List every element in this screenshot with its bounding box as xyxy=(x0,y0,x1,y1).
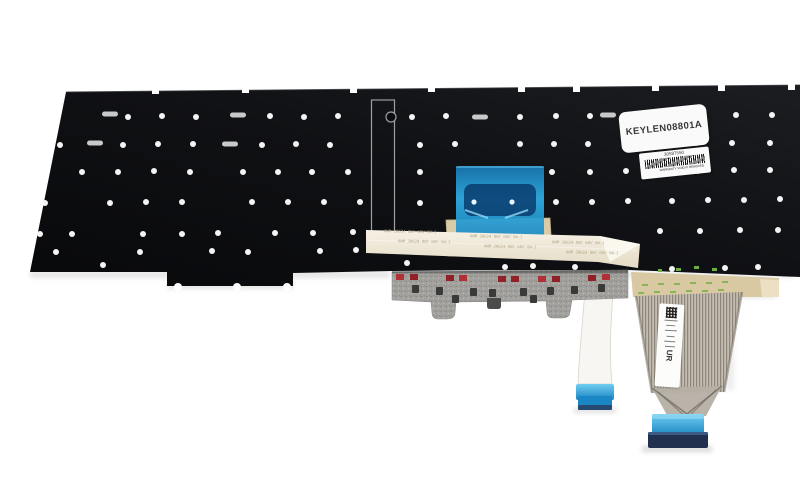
rivet-dot xyxy=(240,169,246,175)
switch-clip xyxy=(530,295,537,303)
rivet-dot xyxy=(777,196,783,202)
alignment-notch xyxy=(788,84,795,90)
screw-slot xyxy=(87,141,103,146)
rivet-dot xyxy=(625,198,631,204)
rivet-dot xyxy=(417,169,423,175)
rivet-dot xyxy=(215,230,221,236)
trackpoint-cable xyxy=(576,290,614,410)
screw-slot xyxy=(102,112,118,117)
rivet-dot xyxy=(335,113,341,119)
rivet-dot xyxy=(530,263,536,269)
rivet-dot xyxy=(722,265,728,271)
qr-code xyxy=(666,307,678,319)
screw-slot xyxy=(222,142,238,147)
rivet-dot xyxy=(553,113,559,119)
switch-clip xyxy=(547,287,554,295)
screw-slot xyxy=(230,113,246,118)
rivet-dot xyxy=(769,112,775,118)
rivet-dot xyxy=(100,262,106,268)
switch-clip xyxy=(489,289,496,297)
rivet-dot xyxy=(245,249,251,255)
product-photo: KEYLEN08801A 30587550 WARRANTY VOID IF R… xyxy=(0,0,800,500)
rivet-dot xyxy=(404,260,410,266)
alignment-notch xyxy=(718,85,725,91)
switch-clip xyxy=(412,285,419,293)
rivet-dot xyxy=(353,247,359,253)
rivet-dot xyxy=(293,141,299,147)
label-text-line xyxy=(665,320,678,322)
rivet-dot xyxy=(125,114,131,120)
rivet-dot xyxy=(345,169,351,175)
alignment-notch xyxy=(350,87,357,93)
rivet-dot xyxy=(285,199,291,205)
label-text-line xyxy=(664,341,675,343)
rivet-dot xyxy=(767,167,773,173)
rivet-dot xyxy=(107,200,113,206)
label-text-line xyxy=(666,325,675,327)
switch-component-red xyxy=(588,275,596,281)
rivet-dot xyxy=(53,249,59,255)
rivet-dot xyxy=(585,141,591,147)
alignment-notch xyxy=(652,85,659,91)
rivet-dot xyxy=(272,230,278,236)
rivet-dot xyxy=(409,114,415,120)
label-text-line xyxy=(664,346,674,348)
rivet-dot xyxy=(143,199,149,205)
rivet-dot xyxy=(310,230,316,236)
rivet-dot xyxy=(729,140,735,146)
rivet-dot xyxy=(551,141,557,147)
rivet-dot xyxy=(57,142,63,148)
switch-clip xyxy=(571,286,578,294)
rivet-dot xyxy=(187,169,193,175)
photo-canvas xyxy=(0,0,800,500)
rivet-dot xyxy=(623,168,629,174)
rivet-dot xyxy=(517,114,523,120)
label-text-line xyxy=(664,330,676,332)
rivet-dot xyxy=(209,248,215,254)
switch-clip xyxy=(598,284,605,292)
rivet-dot xyxy=(120,142,126,148)
switch-clip xyxy=(470,288,477,296)
rivet-dot xyxy=(309,169,315,175)
rivet-dot xyxy=(705,197,711,203)
rivet-dot xyxy=(587,113,593,119)
switch-clip xyxy=(520,288,527,296)
rivet-dot xyxy=(69,231,75,237)
rivet-dot xyxy=(755,264,761,270)
rivet-dot xyxy=(79,169,85,175)
alignment-notch xyxy=(428,86,435,92)
flex-cable-label: UR xyxy=(654,303,684,387)
switch-component-red xyxy=(552,276,560,282)
alignment-notch xyxy=(518,86,525,92)
rivet-dot xyxy=(321,199,327,205)
rivet-dot xyxy=(179,199,185,205)
rivet-dot xyxy=(417,142,423,148)
rivet-dot xyxy=(767,140,773,146)
alignment-notch xyxy=(242,87,249,93)
screw-slot xyxy=(472,115,488,120)
trackpoint-film xyxy=(456,166,544,238)
rivet-dot xyxy=(669,198,675,204)
rivet-dot xyxy=(159,113,165,119)
rivet-dot xyxy=(275,169,281,175)
rivet-dot xyxy=(502,264,508,270)
main-flex-cable xyxy=(636,292,742,448)
rivet-dot xyxy=(549,169,555,175)
switch-component-red xyxy=(396,274,404,280)
switch-component-red xyxy=(459,275,467,281)
center-tab xyxy=(487,298,501,309)
switch-component-red xyxy=(511,276,519,282)
rivet-dot xyxy=(267,113,273,119)
rivet-dot xyxy=(572,264,578,270)
rivet-dot xyxy=(115,169,121,175)
switch-component-red xyxy=(498,276,506,282)
rivet-dot xyxy=(137,249,143,255)
rivet-dot xyxy=(37,231,43,237)
rivet-dot xyxy=(249,199,255,205)
rivet-dot xyxy=(193,114,199,120)
rivet-dot xyxy=(259,142,265,148)
rivet-dot xyxy=(317,248,323,254)
switch-component-red xyxy=(538,276,546,282)
switch-component-red xyxy=(602,274,610,280)
rivet-dot xyxy=(350,229,356,235)
rivet-dot xyxy=(741,197,747,203)
rivet-dot xyxy=(731,167,737,173)
alignment-notch xyxy=(152,88,159,94)
rivet-dot xyxy=(190,141,196,147)
rivet-dot xyxy=(657,228,663,234)
rivet-dot xyxy=(733,112,739,118)
alignment-notch xyxy=(573,86,580,92)
switch-clip xyxy=(436,287,443,295)
rivet-dot xyxy=(737,227,743,233)
rivet-dot xyxy=(417,200,423,206)
rivet-dot xyxy=(443,113,449,119)
rivet-dot xyxy=(587,169,593,175)
rivet-dot xyxy=(517,141,523,147)
switch-clip xyxy=(452,295,459,303)
rivet-dot xyxy=(140,231,146,237)
switch-component-red xyxy=(410,274,418,280)
rivet-dot xyxy=(553,199,559,205)
rivet-dot xyxy=(669,266,675,272)
rivet-dot xyxy=(155,141,161,147)
rivet-dot xyxy=(151,168,157,174)
rivet-dot xyxy=(697,228,703,234)
rivet-dot xyxy=(589,199,595,205)
rivet-dot xyxy=(327,142,333,148)
rivet-dot xyxy=(301,114,307,120)
label-text-line xyxy=(666,335,674,336)
cable-fold xyxy=(652,386,722,417)
rivet-dot xyxy=(42,200,48,206)
switch-component-red xyxy=(446,275,454,281)
rivet-dot xyxy=(452,141,458,147)
rivet-dot xyxy=(179,231,185,237)
ul-recognized-mark: UR xyxy=(664,350,674,362)
part-number-text: KEYLEN08801A xyxy=(625,119,702,138)
rivet-dot xyxy=(775,227,781,233)
rivet-dot xyxy=(357,199,363,205)
screw-slot xyxy=(600,113,616,118)
